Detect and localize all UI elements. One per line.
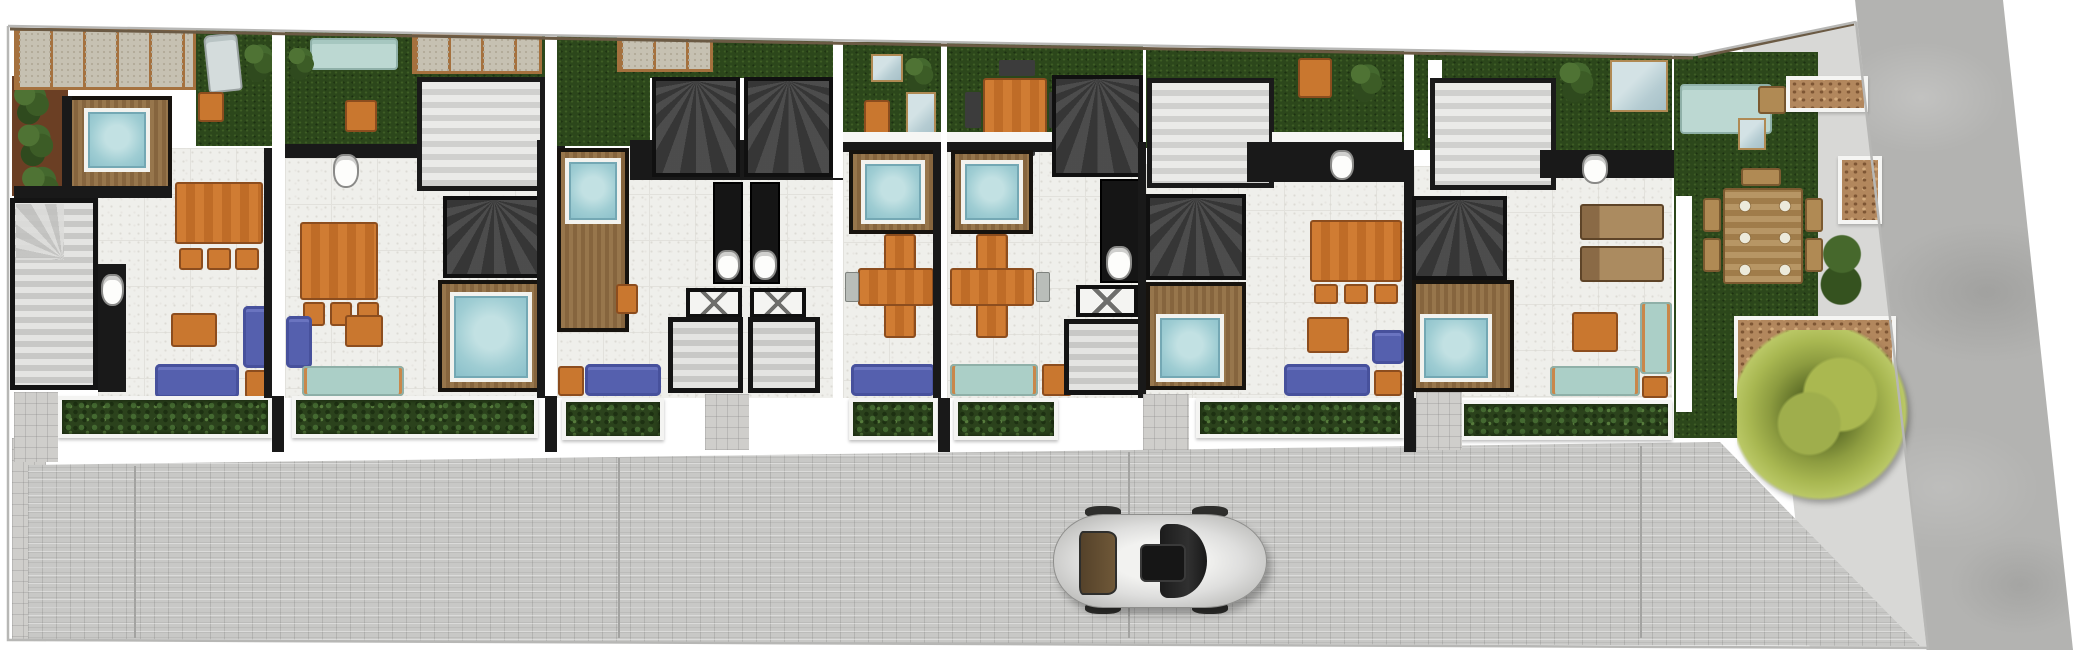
unit2-pergola — [417, 77, 545, 191]
unit2-gravel-path — [412, 34, 542, 74]
unit2-plant — [287, 42, 315, 82]
unit4-table — [858, 268, 934, 306]
unit4-ottoman — [864, 100, 890, 136]
unit4-skylight-glass — [871, 54, 903, 82]
lot-gap — [272, 26, 285, 398]
lot-gap — [545, 30, 557, 398]
garden-bush — [1818, 230, 1866, 310]
garden-path — [1676, 196, 1692, 412]
unit7-lounge-chair — [1640, 302, 1672, 374]
unit2-ottoman — [345, 100, 377, 132]
unit7-ottoman — [1642, 376, 1668, 398]
unit1-gravel-path — [14, 28, 196, 90]
gravel-planter — [1838, 156, 1882, 224]
unit1-entry-path — [14, 392, 58, 462]
garden-skylight-glass — [1738, 118, 1766, 150]
unit7-toilet — [1582, 154, 1608, 184]
unit1-chair — [207, 248, 231, 270]
driveway-seam — [134, 466, 136, 638]
unit1-hedge — [58, 396, 272, 438]
unit3-gravel-path — [617, 36, 713, 72]
garden-chair — [1741, 168, 1781, 186]
unit4-sofa — [851, 364, 935, 396]
unit6-wall — [1247, 142, 1404, 182]
unit3-ottoman — [558, 366, 584, 396]
unit5-pool — [961, 160, 1023, 224]
unit5-chair — [965, 92, 981, 128]
unit6-chair — [1314, 284, 1338, 304]
unit5-skylight — [1076, 285, 1138, 317]
unit2-ottoman — [345, 315, 383, 347]
unit4-band — [843, 132, 943, 142]
unit2-pool — [450, 292, 532, 382]
unit3-stair-roof — [744, 77, 833, 177]
unit7-stair-roof — [1412, 196, 1507, 280]
unit7-lounger — [1580, 246, 1664, 282]
party-wall — [537, 140, 545, 398]
unit6-chair — [1374, 284, 1398, 304]
unit6-pool — [1156, 314, 1224, 382]
unit2-dining-table — [300, 222, 378, 300]
garden-chair — [1805, 198, 1823, 232]
car-sunroof — [1140, 544, 1186, 582]
unit5-garage-roof — [1064, 319, 1143, 395]
party-wall — [938, 398, 950, 452]
unit2-sofa — [302, 366, 404, 396]
unit7-hedge — [1460, 400, 1672, 440]
unit2-lounger — [310, 38, 398, 70]
unit7-ottoman — [1572, 312, 1618, 352]
driveway — [28, 440, 1920, 648]
party-wall — [272, 396, 284, 452]
driveway-seam — [1640, 446, 1642, 638]
party-wall — [545, 396, 557, 452]
unit3-ottoman — [616, 284, 638, 314]
unit1-chair — [235, 248, 259, 270]
unit5-table — [950, 268, 1034, 306]
unit1-sofa — [155, 364, 239, 398]
unit2-toilet — [333, 154, 359, 188]
party-wall — [933, 142, 941, 398]
unit1-lounger — [203, 32, 243, 93]
party-wall — [264, 148, 272, 398]
unit6-band — [1272, 132, 1402, 142]
unit6-stair-roof — [1146, 194, 1246, 280]
unit2-stair-roof — [443, 196, 545, 278]
garden-chair — [1703, 198, 1721, 232]
party-wall — [1404, 398, 1416, 452]
unit7-entry-path — [1416, 392, 1462, 450]
unit7-pool — [1420, 314, 1492, 382]
garden-dining-table — [1723, 188, 1803, 284]
unit5-sofa — [950, 364, 1038, 396]
unit6-ottoman — [1298, 58, 1332, 98]
unit3-skylight — [750, 288, 806, 318]
unit3-toilet — [753, 250, 777, 280]
unit7-plant — [1556, 56, 1596, 104]
unit6-dining-table — [1310, 220, 1402, 282]
unit6-toilet — [1330, 150, 1354, 180]
unit2-hedge — [292, 396, 538, 438]
lot-gap — [833, 36, 843, 178]
unit3-entry-path — [705, 394, 749, 450]
gravel-planter — [1786, 76, 1868, 112]
unit1-stair-fan — [16, 204, 64, 260]
unit5-stair-roof — [1052, 75, 1143, 177]
unit3-garage-roof — [668, 317, 743, 393]
unit2-armchair — [286, 316, 312, 368]
unit6-ottoman — [1307, 317, 1349, 353]
unit1-ottoman — [171, 313, 217, 347]
party-wall — [1138, 142, 1146, 398]
unit1-wall — [14, 186, 172, 198]
unit3-stair-roof — [652, 77, 740, 177]
unit7-lounger — [1580, 204, 1664, 240]
garden-side-table — [1758, 86, 1786, 114]
unit6-ottoman — [1374, 370, 1402, 396]
unit1-toilet — [101, 274, 124, 306]
unit6-chair — [1344, 284, 1368, 304]
garden-tree — [1737, 330, 1909, 500]
unit4-plant — [903, 52, 935, 94]
unit6-entry-path — [1143, 394, 1189, 450]
unit3-skylight — [686, 288, 742, 318]
unit3-pool — [565, 158, 621, 224]
unit6-armchair — [1372, 330, 1404, 364]
unit1-pool — [84, 108, 150, 172]
unit4-hedge — [849, 398, 937, 440]
unit7-wall — [1540, 150, 1676, 178]
unit3-toilet — [716, 250, 740, 280]
unit1-dining-table — [175, 182, 263, 244]
unit3-sofa — [585, 364, 661, 396]
unit3-hedge — [562, 398, 664, 440]
unit6-sofa — [1284, 364, 1370, 396]
unit5-toilet — [1106, 246, 1132, 280]
unit5-hedge — [954, 398, 1058, 440]
unit1-chair — [179, 248, 203, 270]
unit6-plant — [1348, 58, 1384, 104]
site-plan — [0, 0, 2074, 650]
unit1-plant — [242, 38, 276, 84]
unit7-pergola — [1430, 78, 1556, 190]
garden-chair — [1703, 238, 1721, 272]
unit7-skylight-glass — [1610, 60, 1668, 112]
unit6-hedge — [1196, 398, 1404, 438]
unit4-chair — [845, 272, 859, 302]
unit5-garden-table — [983, 78, 1047, 138]
unit7-sofa — [1550, 366, 1640, 396]
unit1-wall — [62, 96, 72, 190]
unit1-ottoman — [198, 92, 224, 122]
unit5-chair — [1036, 272, 1050, 302]
unit4-pool — [861, 160, 925, 224]
unit5-chair — [999, 60, 1035, 76]
driveway-seam — [618, 458, 620, 638]
unit3-garage-roof — [748, 317, 820, 393]
